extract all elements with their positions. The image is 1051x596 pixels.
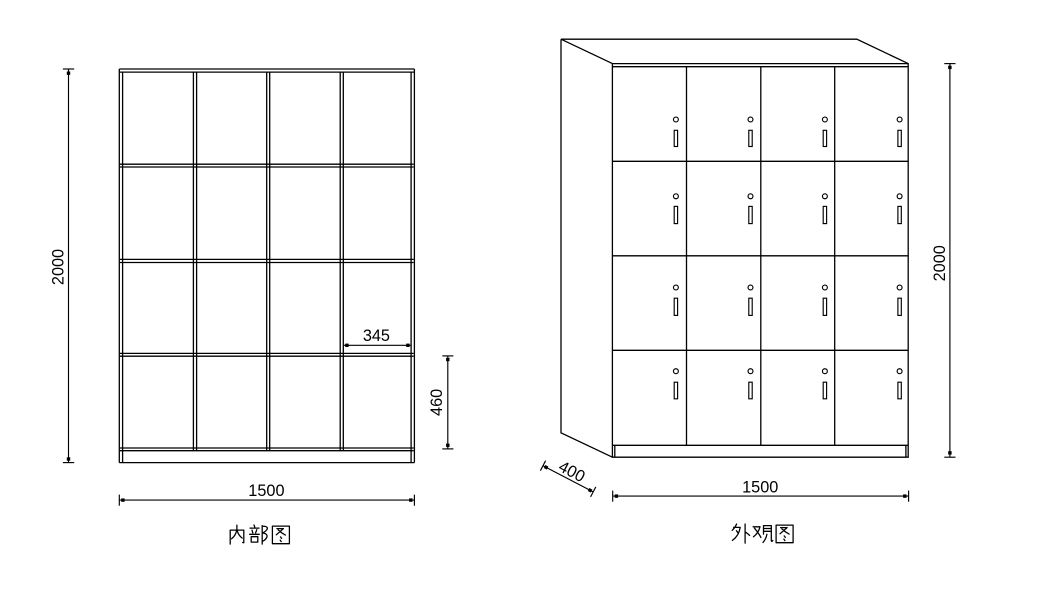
- svg-text:345: 345: [363, 327, 390, 345]
- svg-text:2000: 2000: [50, 249, 68, 285]
- svg-text:2000: 2000: [931, 245, 949, 281]
- svg-text:1500: 1500: [742, 478, 778, 496]
- svg-text:1500: 1500: [248, 482, 284, 500]
- svg-text:460: 460: [428, 389, 446, 416]
